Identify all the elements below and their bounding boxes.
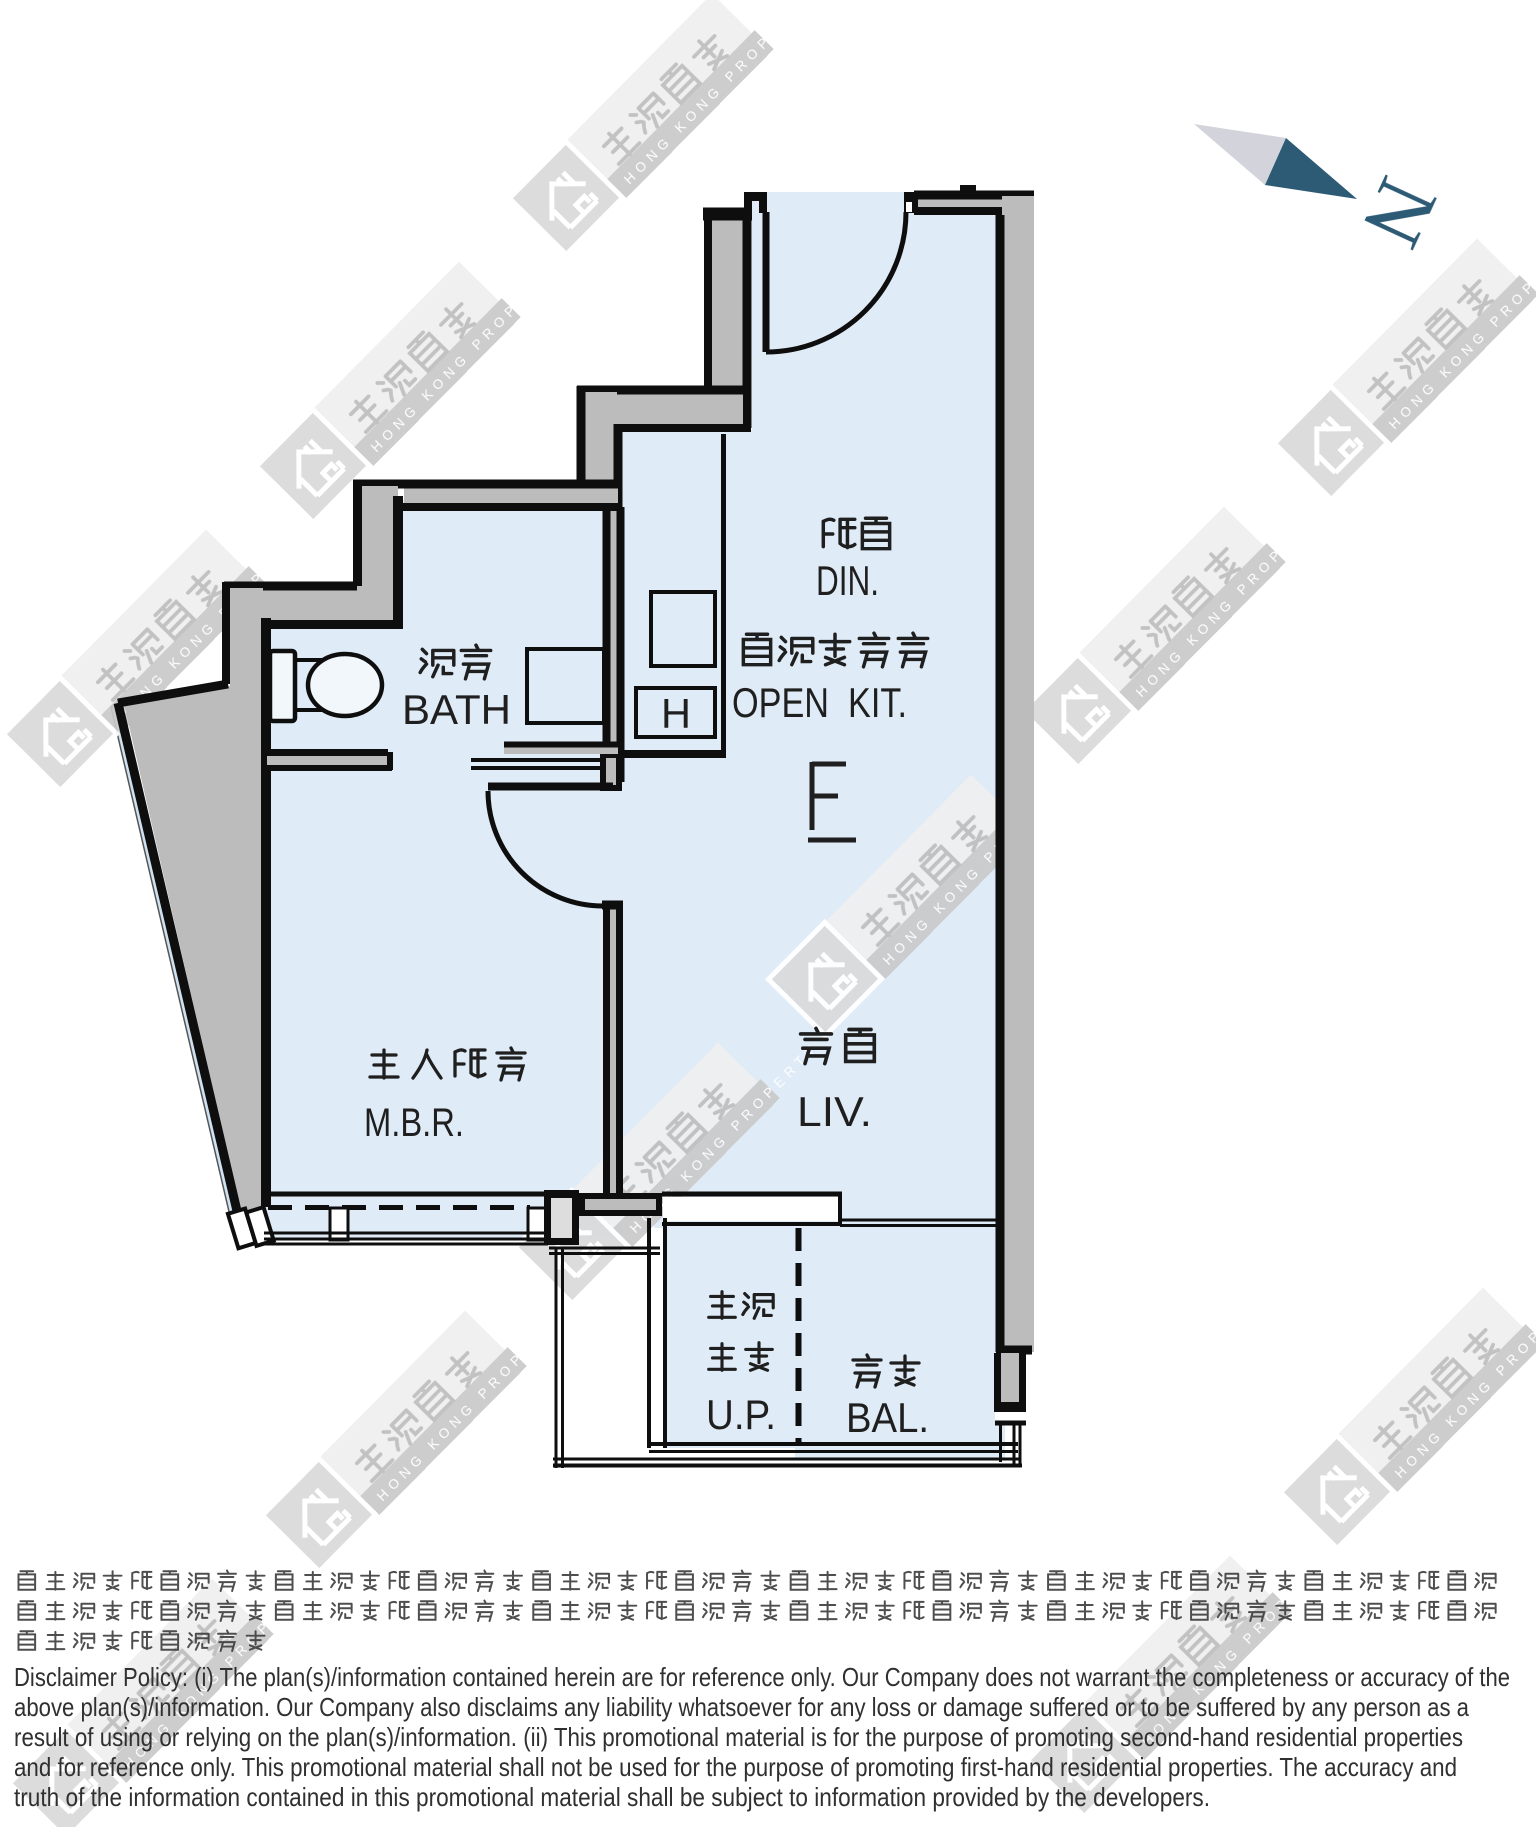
svg-text:OPEN KIT.: OPEN KIT. — [732, 679, 907, 726]
svg-text:LIV.: LIV. — [797, 1088, 872, 1135]
svg-text:truth of the information conta: truth of the information contained in th… — [14, 1782, 1210, 1812]
svg-text:U.P.: U.P. — [706, 1391, 776, 1438]
svg-text:BAL.: BAL. — [846, 1394, 929, 1441]
svg-text:above plan(s)/information. Our: above plan(s)/information. Our Company a… — [14, 1692, 1469, 1722]
svg-text:H: H — [661, 690, 691, 737]
svg-text:DIN.: DIN. — [816, 557, 879, 604]
svg-text:BATH: BATH — [402, 686, 511, 733]
svg-text:M.B.R.: M.B.R. — [364, 1101, 464, 1145]
svg-text:result of using or relying on: result of using or relying on the plan(s… — [14, 1722, 1463, 1752]
svg-text:and for reference only. This p: and for reference only. This promotional… — [14, 1752, 1457, 1782]
svg-text:Disclaimer Policy: (i) The pla: Disclaimer Policy: (i) The plan(s)/infor… — [14, 1662, 1510, 1692]
